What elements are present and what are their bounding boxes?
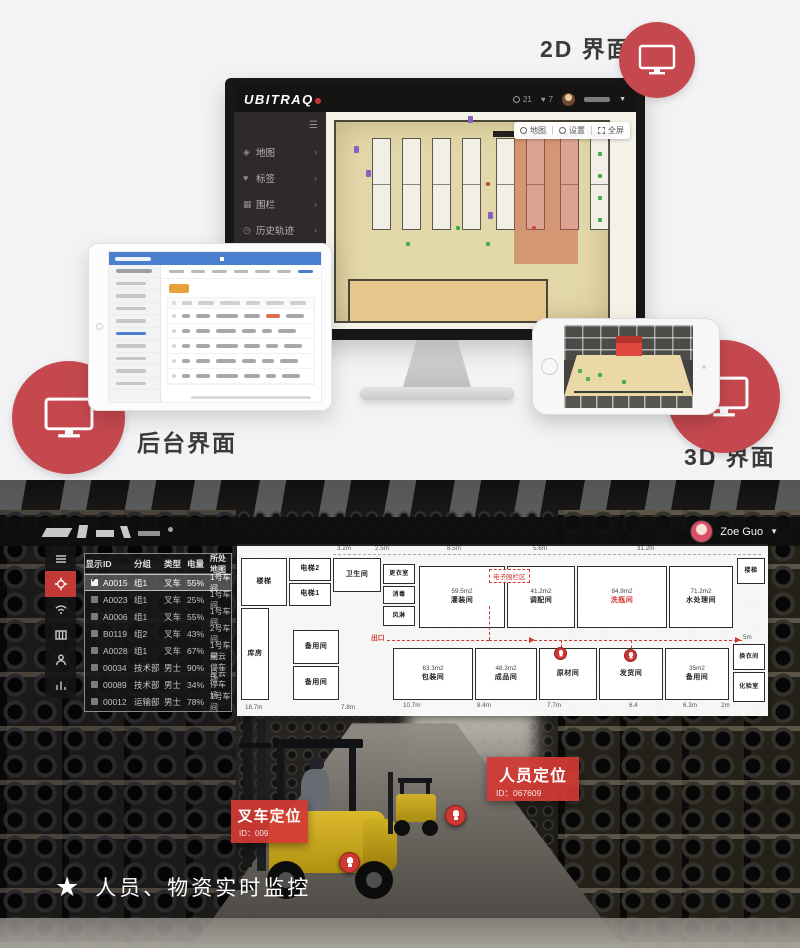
marketing-top-section: 2D 界面 UBITRAQ 21 ♥7 ▼ (0, 0, 800, 480)
rail-fence-button[interactable] (45, 622, 76, 647)
map-loading-dock (348, 279, 548, 321)
notification-badge-2[interactable]: ♥7 (541, 95, 553, 104)
map-icon: ◈ (243, 147, 256, 158)
phone-3d-view[interactable] (564, 325, 693, 408)
chevron-right-icon: › (314, 225, 317, 235)
circle-2d (619, 22, 695, 98)
forklift-pin[interactable] (339, 852, 360, 873)
room-finished-goods: 48.3m2成品间 (475, 648, 537, 700)
gear-icon (559, 127, 566, 134)
room-spare-a: 备用间 (293, 630, 339, 664)
monitor-stand (403, 340, 471, 387)
room-storage: 库房 (241, 608, 269, 700)
fence-icon: ▦ (243, 199, 256, 210)
sidebar-item-tags[interactable]: ♥标签› (234, 165, 326, 191)
avatar[interactable] (690, 520, 713, 543)
exit-label: 出口 (371, 632, 385, 642)
monitor-base (360, 387, 514, 400)
path-arrow (735, 637, 741, 643)
monitor-2d-map[interactable]: 地图 设置 全屏 (326, 112, 636, 329)
table-row[interactable]: 00012运输部男士78%1号车间 (85, 693, 231, 710)
chevron-down-icon[interactable]: ▼ (619, 96, 626, 103)
ubitraq-topbar: UBITRAQ 21 ♥7 ▼ (234, 86, 636, 112)
fullscreen-icon (598, 127, 605, 134)
room-spare-c: 35m2备用间 (665, 648, 729, 700)
tablet-content (161, 265, 321, 402)
user-menu[interactable]: Zoe Guo ▼ (690, 520, 778, 543)
row-checkbox[interactable] (91, 681, 98, 688)
warehouse-3d-floor (564, 355, 693, 397)
username: Zoe Guo (720, 526, 763, 538)
row-checkbox[interactable] (91, 647, 98, 654)
row-checkbox[interactable] (91, 579, 98, 586)
locate-icon (54, 577, 68, 591)
warehouse-3d-foreground (564, 396, 693, 408)
rail-stats-button[interactable] (45, 673, 76, 698)
plan-pin-shipping[interactable] (624, 649, 637, 662)
person-pin[interactable] (445, 805, 466, 826)
map-toolbar-fullscreen-button[interactable]: 全屏 (598, 125, 624, 136)
rail-person-button[interactable] (45, 647, 76, 672)
room-air-shower: 风淋 (383, 606, 415, 626)
sidebar-item-fence[interactable]: ▦围栏› (234, 191, 326, 217)
heart-count-icon: ♥ (541, 95, 546, 104)
room-lab: 化验室 (733, 672, 765, 702)
row-checkbox[interactable] (91, 613, 98, 620)
room-changing: 换衣间 (733, 644, 765, 670)
device-table: 显示 ID 分组 类型 电量 所处地图 A0015组1叉车55%1号车间 A00… (84, 553, 232, 712)
label-backend-interface: 后台界面 (137, 424, 237, 458)
page: 2D 界面 UBITRAQ 21 ♥7 ▼ (0, 0, 800, 948)
chevron-right-icon: › (314, 199, 317, 209)
room-toilet: 卫生间 (333, 558, 381, 592)
map-toolbar-settings-button[interactable]: 设置 (559, 125, 585, 136)
tablet-data-table (167, 297, 315, 385)
wifi-icon (54, 602, 68, 616)
path-arrow (529, 637, 535, 643)
tablet-screen (108, 251, 322, 403)
app-topbar: Zoe Guo ▼ (0, 517, 800, 546)
notification-badge-1[interactable]: 21 (513, 95, 532, 104)
star-icon: ★ (55, 874, 79, 901)
row-checkbox[interactable] (91, 630, 98, 637)
tag-count-icon (513, 96, 520, 103)
fence-icon (54, 628, 68, 642)
red-3d-marker (616, 343, 642, 356)
room-elevator1: 电梯1 (289, 583, 331, 606)
ubitraq-logo: UBITRAQ (244, 92, 321, 107)
tablet-primary-button[interactable] (169, 284, 189, 293)
trajectory-path (387, 640, 489, 641)
collapse-menu-icon[interactable]: ☰ (234, 118, 326, 139)
phone-camera (702, 365, 706, 369)
tool-rail (45, 546, 76, 698)
map-toolbar-map-button[interactable]: 地图 (520, 125, 546, 136)
room-spare-b: 备用间 (293, 666, 339, 700)
row-checkbox[interactable] (91, 596, 98, 603)
menu-icon (54, 552, 68, 566)
floorplan-map[interactable]: 3.2m 2.5m 8.5m 5.6m 31.2m 楼梯 电梯2 电梯1 卫生间… (237, 544, 768, 716)
chevron-right-icon: › (314, 147, 317, 157)
electronic-fence-label: 电子围栏区 (489, 569, 530, 583)
map-pin-icon (520, 127, 527, 134)
phone-device (532, 318, 720, 415)
history-icon: ◷ (243, 225, 256, 236)
bar-chart-icon (54, 678, 68, 692)
sidebar-item-history[interactable]: ◷历史轨迹› (234, 217, 326, 243)
sidebar-item-map[interactable]: ◈地图› (234, 139, 326, 165)
person-location-badge[interactable]: 人员定位 ID：067609 (487, 757, 579, 801)
chevron-down-icon[interactable]: ▼ (770, 527, 778, 536)
tablet-sidebar[interactable] (109, 265, 161, 402)
person-icon (54, 653, 68, 667)
row-checkbox[interactable] (91, 698, 98, 705)
room-locker: 更衣室 (383, 564, 415, 584)
monitor-icon (637, 43, 677, 77)
logo-dot (315, 98, 321, 104)
forklift-small-art (386, 772, 448, 850)
rail-menu-button[interactable] (45, 546, 76, 571)
row-checkbox[interactable] (91, 664, 98, 671)
tablet-footer-text (191, 396, 311, 399)
plan-pin-raw-material[interactable] (554, 647, 567, 660)
warehouse-scene: Zoe Guo ▼ (0, 480, 800, 948)
room-washing: 84.9m2洗瓶间 (577, 566, 667, 628)
tablet-tabs[interactable] (161, 265, 321, 279)
forklift-location-badge[interactable]: 叉车定位 ID：009 (231, 800, 308, 843)
room-raw-material: 原材间 (539, 648, 597, 700)
chevron-right-icon: › (314, 173, 317, 183)
scene-caption: ★ 人员、物资实时监控 (55, 872, 311, 902)
room-stairs-left: 楼梯 (241, 558, 287, 606)
app-logo (44, 522, 254, 542)
tablet-app-header (109, 252, 321, 265)
room-water-treatment: 71.2m2水处理间 (669, 566, 733, 628)
rail-locate-button[interactable] (45, 571, 76, 596)
tablet-camera (96, 323, 103, 330)
room-packing: 63.3m2包装间 (393, 648, 473, 700)
tablet-device (88, 243, 332, 411)
caption-text: 人员、物资实时监控 (95, 872, 311, 902)
tag-icon: ♥ (243, 173, 256, 183)
map-toolbar: 地图 设置 全屏 (514, 122, 630, 139)
room-stairs-right: 楼梯 (737, 558, 765, 584)
map-floor (334, 120, 610, 323)
phone-home-button[interactable] (541, 358, 558, 375)
room-elevator2: 电梯2 (289, 558, 331, 581)
map-alert-zone (514, 136, 578, 264)
rail-signal-button[interactable] (45, 597, 76, 622)
user-avatar[interactable] (562, 93, 575, 106)
username-placeholder (584, 97, 610, 102)
room-disinfect: 消毒 (383, 586, 415, 604)
